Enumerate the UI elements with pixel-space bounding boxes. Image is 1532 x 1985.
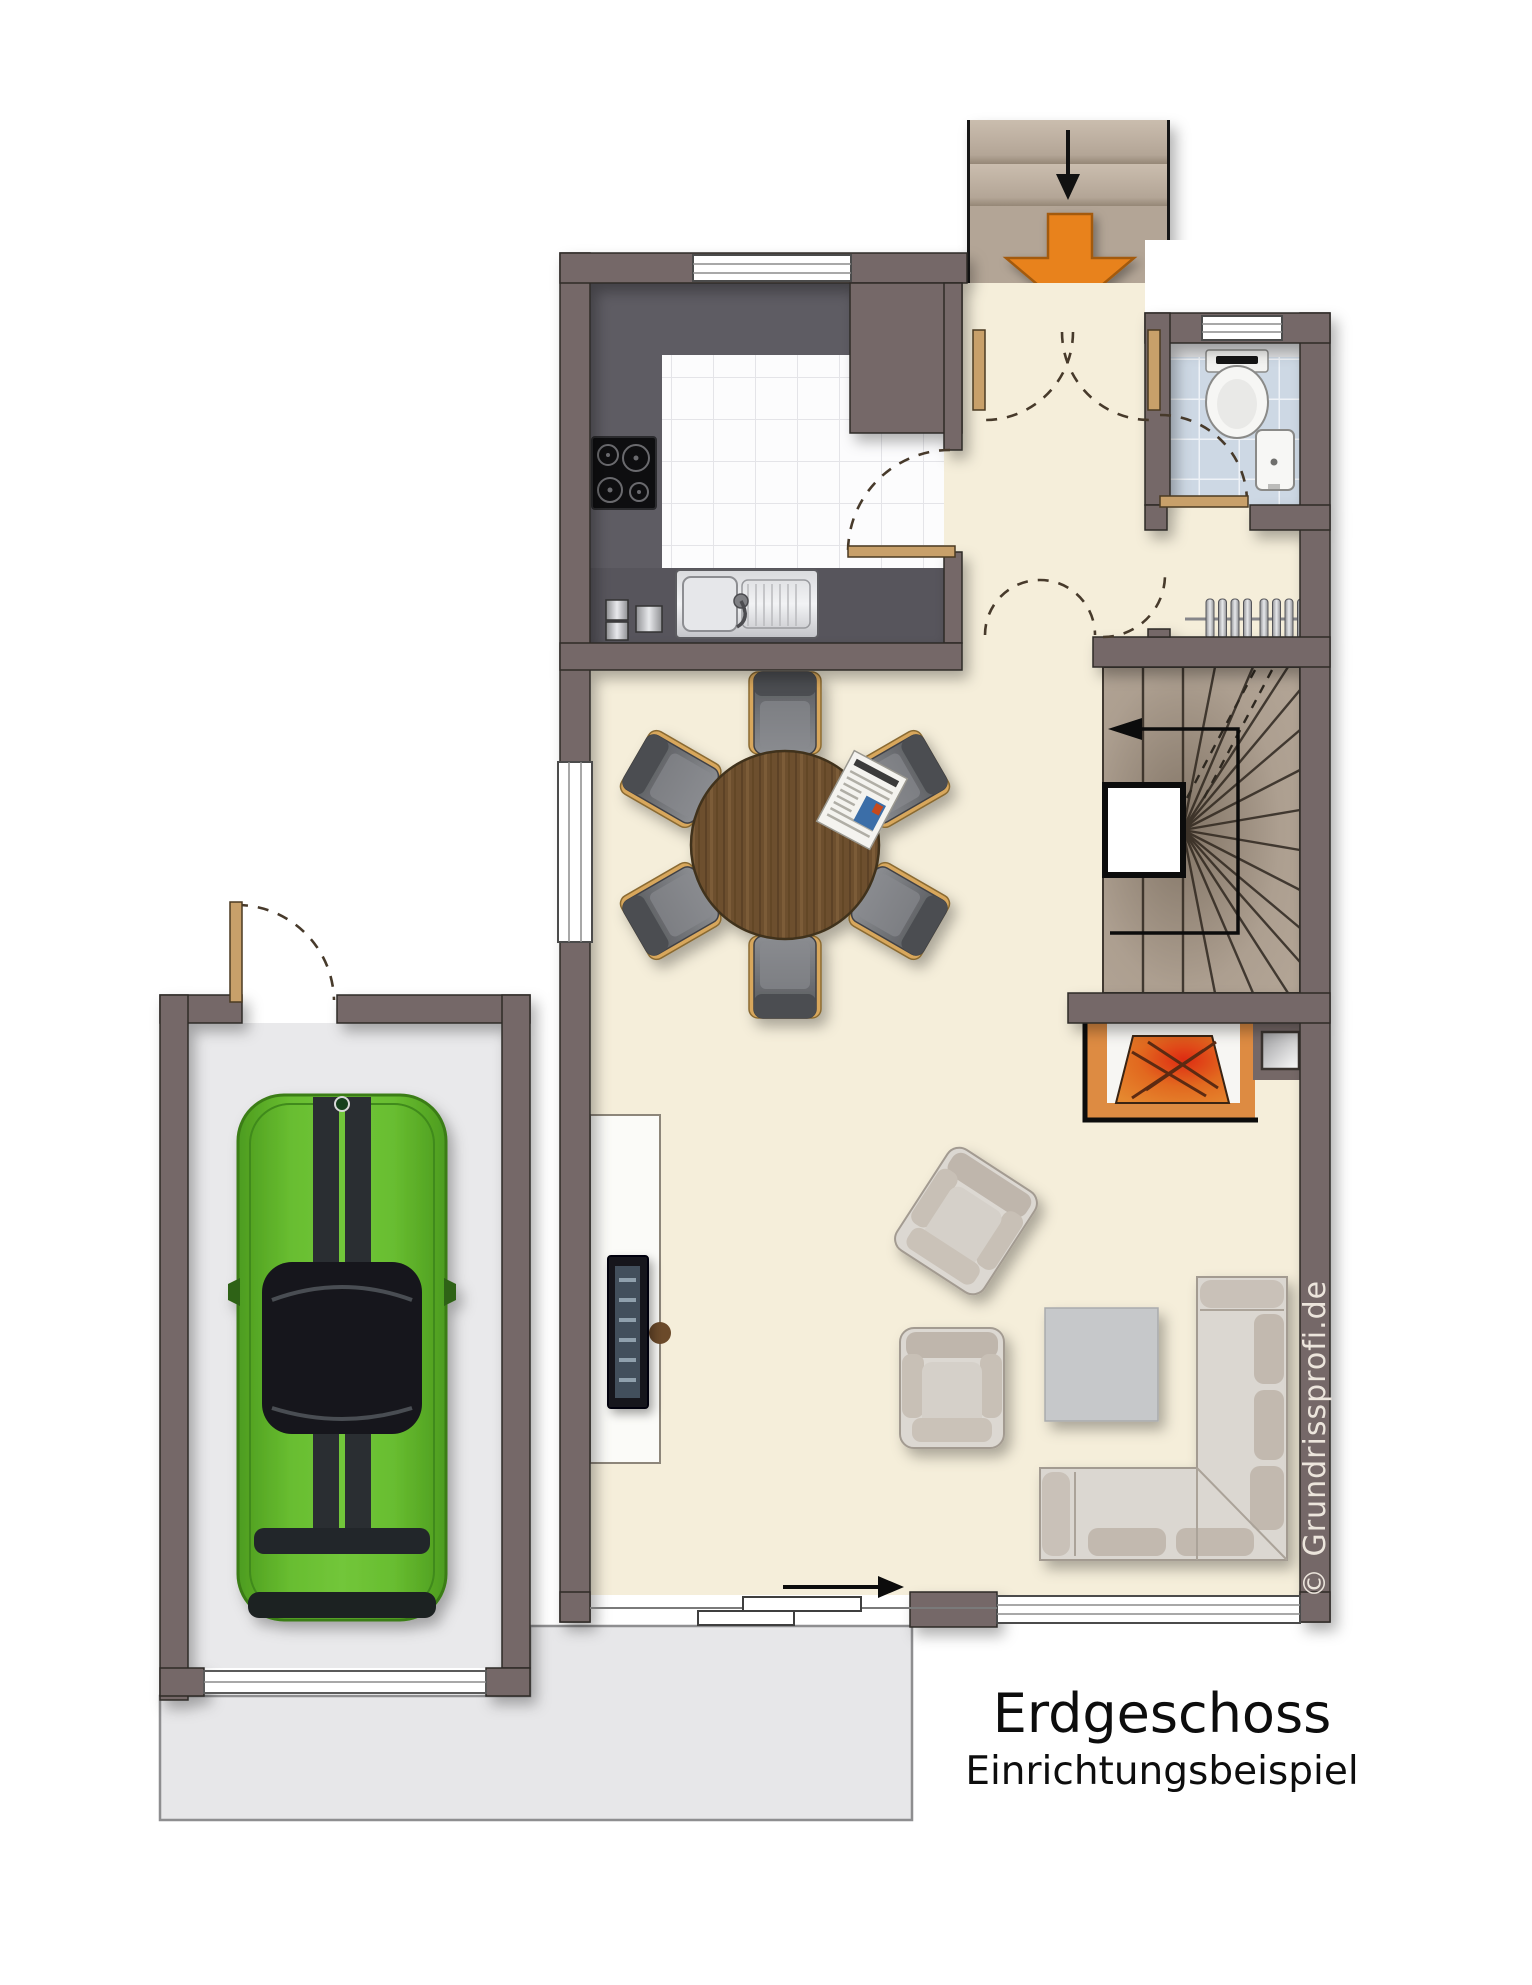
living-window-bottom — [997, 1596, 1300, 1623]
car-spoiler — [254, 1528, 430, 1554]
dining-window-left — [558, 762, 592, 942]
bathroom-window — [1202, 316, 1282, 340]
wall-kitchen-bottom — [560, 643, 962, 670]
wall-kitchen-right-b — [944, 552, 962, 643]
garage-door-arc — [237, 905, 334, 1000]
tv-mount — [649, 1322, 671, 1344]
coffee-table — [1045, 1308, 1158, 1421]
wall-bath-bottom-a — [1145, 505, 1167, 530]
floor-title: Erdgeschoss — [993, 1682, 1332, 1745]
hood-stripe — [313, 1097, 339, 1265]
wall-kitchen-right-a — [944, 283, 962, 450]
wall-garage-left — [160, 995, 188, 1700]
sliding-door-panel — [698, 1611, 794, 1625]
garage-side-door-leaf — [230, 902, 242, 1002]
wall-stairs-bottom — [1068, 993, 1330, 1023]
floorplan-svg: © Grundrissprofi.de Erdgeschoss Einricht… — [0, 0, 1532, 1985]
car-bumper — [248, 1592, 436, 1618]
wall-garage-right — [502, 995, 530, 1668]
watermark-text: © Grundrissprofi.de — [1298, 1280, 1333, 1598]
stair-well-void — [1105, 785, 1183, 875]
floor-subtitle: Einrichtungsbeispiel — [965, 1749, 1358, 1794]
entrance-door-leaf — [1148, 330, 1160, 410]
wall-bath-bottom-b — [1250, 505, 1330, 530]
kitchen-window — [693, 255, 851, 281]
car-badge — [335, 1097, 349, 1111]
garage — [188, 1023, 502, 1668]
wc-bathroom — [1170, 343, 1300, 505]
floorplan-page: © Grundrissprofi.de Erdgeschoss Einricht… — [0, 0, 1532, 1985]
wall-garage-bottom-b — [486, 1668, 530, 1696]
kitchen-door-leaf — [848, 546, 955, 557]
wall-garage-bottom-a — [160, 1668, 204, 1696]
wall-bottom-stub — [910, 1592, 997, 1627]
bathroom-door-leaf — [1160, 496, 1248, 507]
toilet — [1206, 350, 1268, 438]
kitchen-sink — [676, 570, 818, 638]
wall-bottom-left-stub — [560, 1592, 590, 1622]
hood-stripe — [345, 1097, 371, 1265]
cooktop — [592, 437, 656, 509]
entrance-door-leaf — [973, 330, 985, 410]
garage-door — [204, 1671, 486, 1693]
winder-staircase — [1103, 667, 1300, 993]
sports-car — [228, 1095, 456, 1620]
washbasin — [1256, 430, 1294, 490]
tv — [608, 1256, 648, 1408]
sideboard-with-tv — [590, 1115, 671, 1463]
wall-stairs-top — [1093, 637, 1330, 667]
wall-garage-top-b — [337, 995, 530, 1023]
chimney-flue — [1262, 1032, 1299, 1069]
wall-notch — [1148, 629, 1170, 637]
sliding-door-panel — [743, 1597, 861, 1611]
